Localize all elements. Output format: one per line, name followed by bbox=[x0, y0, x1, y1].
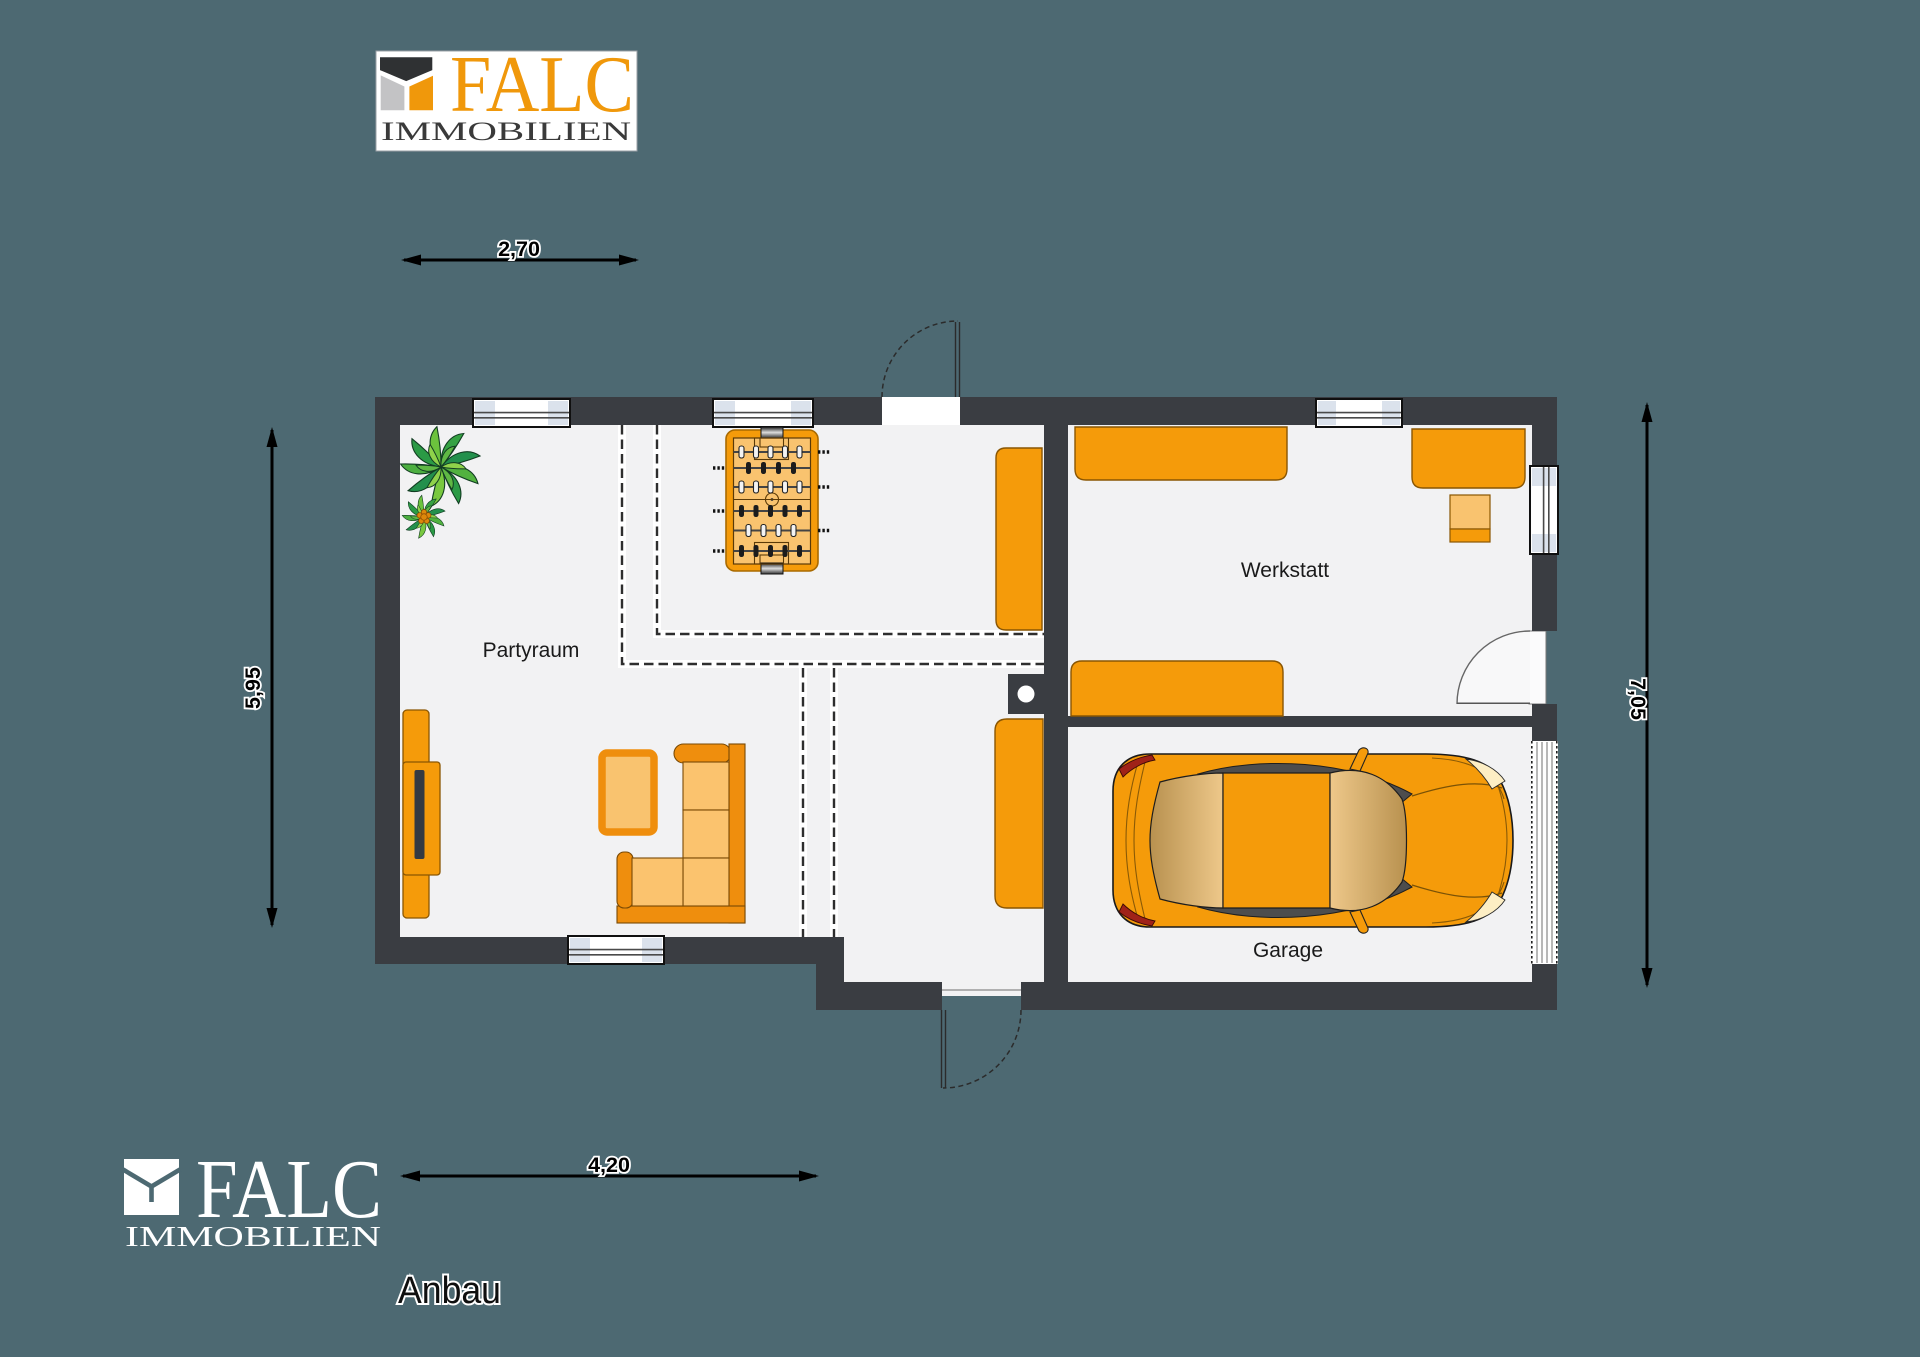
svg-text:2,70: 2,70 bbox=[498, 237, 540, 261]
svg-text:Partyraum: Partyraum bbox=[483, 639, 580, 662]
svg-text:Garage: Garage bbox=[1253, 939, 1323, 962]
svg-text:IMMOBILIEN: IMMOBILIEN bbox=[125, 1222, 381, 1253]
svg-text:FALC: FALC bbox=[450, 41, 634, 129]
svg-text:5,95: 5,95 bbox=[241, 667, 265, 709]
svg-text:7,05: 7,05 bbox=[1626, 678, 1650, 720]
svg-text:IMMOBILIEN: IMMOBILIEN bbox=[381, 117, 631, 146]
svg-text:4,20: 4,20 bbox=[588, 1153, 630, 1177]
svg-text:Anbau: Anbau bbox=[398, 1270, 501, 1312]
svg-text:Werkstatt: Werkstatt bbox=[1241, 559, 1329, 582]
